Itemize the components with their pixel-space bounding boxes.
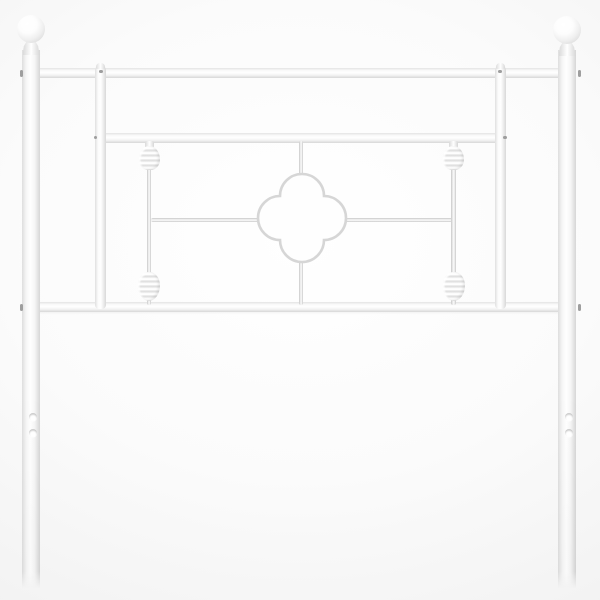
rail-screw: [94, 136, 98, 140]
quatrefoil-outline: [258, 174, 346, 262]
inner-vertical-bar-left: [95, 66, 106, 309]
post-bolt: [20, 70, 23, 77]
spindle-knob-bottom-right: [443, 272, 465, 301]
connector-rod-right: [343, 218, 453, 223]
finial-collar-right: [559, 43, 576, 56]
mounting-hole: [565, 429, 573, 437]
post-bolt: [578, 70, 581, 77]
mounting-hole: [565, 413, 573, 421]
rail-screw: [503, 136, 507, 140]
right-post: [558, 50, 576, 588]
headboard-product-photo: [0, 0, 600, 600]
ball-finial-right: [553, 16, 581, 44]
spindle-knob-top-right: [443, 146, 464, 170]
finial-collar-left: [23, 42, 40, 55]
spindle-knob-bottom-left: [138, 272, 160, 301]
quatrefoil-ornament: [252, 168, 352, 268]
left-post: [22, 50, 40, 588]
post-bolt: [20, 304, 23, 311]
connector-rod-left: [151, 218, 260, 223]
rail-screw: [498, 70, 502, 74]
mounting-hole: [29, 413, 37, 421]
post-bolt: [578, 304, 581, 311]
rail-joint-cap-left: [96, 63, 105, 69]
spindle-knob-top-left: [139, 146, 160, 170]
rail-joint-cap-right: [496, 63, 505, 69]
rail-screw: [99, 70, 103, 74]
ball-finial-left: [17, 15, 45, 43]
inner-vertical-bar-right: [495, 66, 506, 309]
top-rail: [31, 68, 567, 78]
mounting-hole: [29, 429, 37, 437]
